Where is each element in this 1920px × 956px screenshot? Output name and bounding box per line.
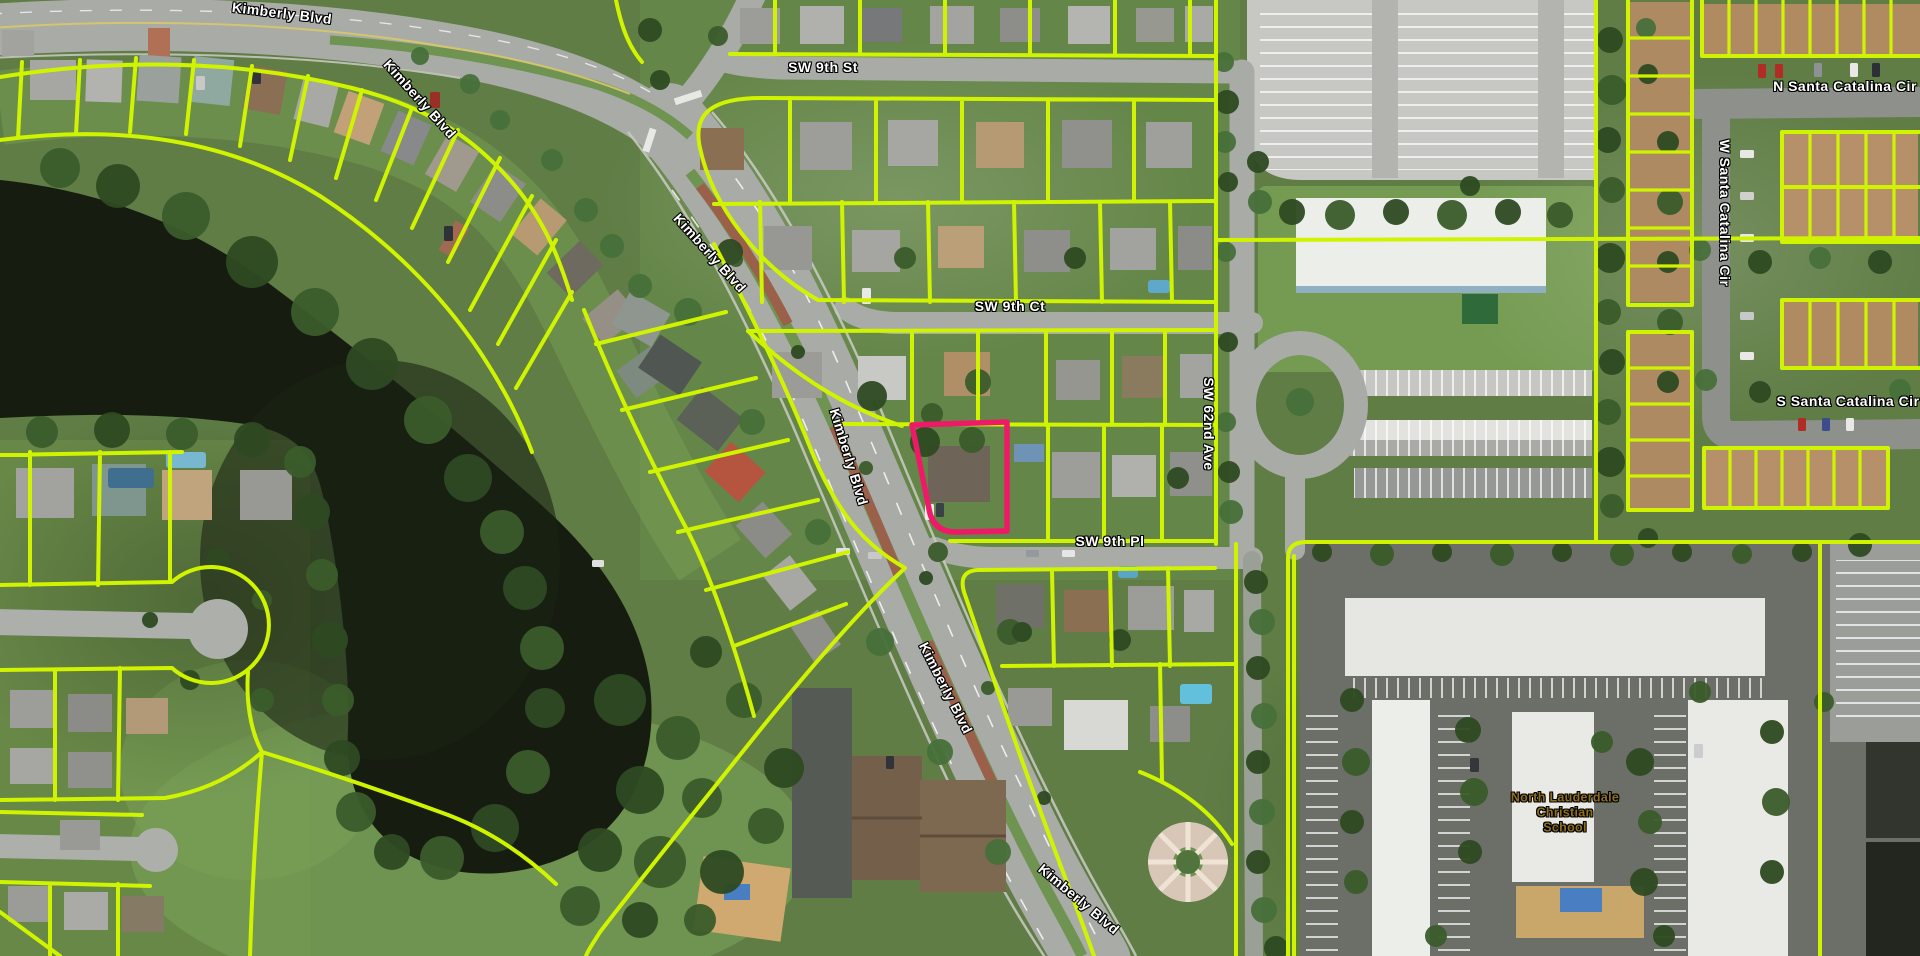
- tree-icon: [1599, 349, 1625, 375]
- building-roof: [976, 122, 1024, 168]
- building-roof: [1056, 360, 1100, 400]
- building-roof: [852, 230, 900, 272]
- tree-icon: [1312, 542, 1332, 562]
- tree-icon: [1848, 533, 1872, 557]
- tree-icon: [650, 70, 670, 90]
- tree-icon: [1342, 748, 1370, 776]
- tree-icon: [1383, 199, 1409, 225]
- tree-icon: [1218, 172, 1238, 192]
- tree-icon: [1460, 176, 1480, 196]
- tree-icon: [1657, 189, 1683, 215]
- tree-icon: [94, 412, 130, 448]
- building-roof: [122, 896, 164, 932]
- tree-icon: [1064, 247, 1086, 269]
- car: [1740, 312, 1754, 320]
- tree-icon: [764, 748, 804, 788]
- building-roof: [1064, 590, 1110, 632]
- building-roof: [8, 886, 50, 922]
- tree-icon: [40, 148, 80, 188]
- tree-icon: [1340, 688, 1364, 712]
- car: [1758, 64, 1766, 78]
- building-roof: [938, 226, 984, 268]
- tree-icon: [1638, 810, 1662, 834]
- tree-icon: [748, 808, 784, 844]
- tree-icon: [1218, 461, 1240, 483]
- tree-icon: [1732, 544, 1752, 564]
- building-roof: [700, 128, 744, 170]
- tree-icon: [708, 26, 728, 46]
- tree-icon: [1218, 332, 1238, 352]
- building-roof: [10, 748, 54, 784]
- tree-icon: [226, 236, 278, 288]
- tree-icon: [324, 740, 360, 776]
- map-viewport[interactable]: North Lauderdale Christian School Kimber…: [0, 0, 1920, 956]
- building-roof: [68, 694, 112, 732]
- tree-icon: [859, 461, 873, 475]
- tree-icon: [1792, 542, 1812, 562]
- car: [444, 226, 453, 241]
- tree-icon: [1216, 412, 1236, 432]
- aerial-map-canvas[interactable]: [0, 0, 1920, 956]
- tree-icon: [1425, 925, 1447, 947]
- building-roof: [888, 120, 938, 166]
- tree-icon: [1552, 542, 1572, 562]
- tree-icon: [1595, 243, 1625, 273]
- tree-icon: [480, 510, 524, 554]
- building-roof: [1122, 356, 1166, 398]
- tree-icon: [1437, 200, 1467, 230]
- tree-icon: [1638, 528, 1658, 548]
- tree-icon: [284, 446, 316, 478]
- building-roof: [60, 820, 100, 850]
- building-roof: [1146, 122, 1192, 168]
- tree-icon: [1279, 199, 1305, 225]
- tree-icon: [250, 688, 274, 712]
- building-roof: [1062, 120, 1112, 168]
- building-roof: [30, 60, 76, 100]
- tree-icon: [1246, 656, 1270, 680]
- tree-icon: [1458, 840, 1482, 864]
- tree-icon: [1251, 897, 1277, 923]
- tree-icon: [1695, 369, 1717, 391]
- tree-icon: [404, 396, 452, 444]
- building-roof: [1136, 8, 1174, 42]
- tree-icon: [894, 247, 916, 269]
- building-roof: [240, 470, 292, 520]
- car: [1740, 192, 1754, 200]
- tree-icon: [1630, 868, 1658, 896]
- tree-icon: [166, 418, 198, 450]
- car: [592, 560, 604, 567]
- building-roof: [1068, 6, 1110, 44]
- tree-icon: [1215, 90, 1239, 114]
- tree-icon: [638, 18, 662, 42]
- building-roof: [928, 446, 990, 502]
- building-roof: [1110, 228, 1156, 270]
- building-roof: [1064, 700, 1128, 750]
- tree-icon: [959, 427, 985, 453]
- car: [936, 503, 944, 517]
- tree-icon: [574, 198, 598, 222]
- car: [196, 76, 205, 90]
- tree-icon: [927, 739, 953, 765]
- tree-icon: [1689, 681, 1711, 703]
- tree-icon: [1809, 247, 1831, 269]
- building-roof: [862, 8, 902, 42]
- tree-icon: [1595, 399, 1621, 425]
- tree-icon: [1219, 500, 1243, 524]
- tree-icon: [26, 416, 58, 448]
- tree-icon: [700, 850, 744, 894]
- building-roof: [1008, 688, 1052, 726]
- tree-icon: [234, 422, 270, 458]
- tree-icon: [578, 828, 622, 872]
- tree-icon: [1432, 542, 1452, 562]
- tree-icon: [96, 164, 140, 208]
- building-roof: [1000, 8, 1040, 42]
- car: [430, 92, 440, 108]
- tree-icon: [1216, 242, 1236, 262]
- building-roof: [136, 55, 181, 104]
- tree-icon: [1599, 177, 1625, 203]
- car: [1694, 744, 1703, 758]
- tree-icon: [506, 750, 550, 794]
- building-roof: [10, 690, 54, 728]
- tree-icon: [306, 559, 338, 591]
- tree-icon: [1597, 27, 1623, 53]
- tree-icon: [928, 542, 948, 562]
- tree-icon: [1370, 542, 1394, 566]
- tree-icon: [560, 886, 600, 926]
- tree-icon: [1246, 850, 1270, 874]
- building-roof: [1184, 590, 1214, 632]
- tree-icon: [1868, 250, 1892, 274]
- tree-icon: [1626, 748, 1654, 776]
- tree-icon: [1248, 190, 1272, 214]
- car: [1470, 758, 1479, 772]
- tree-icon: [1012, 622, 1032, 642]
- tree-icon: [1591, 731, 1613, 753]
- tree-icon: [616, 766, 664, 814]
- tree-icon: [142, 612, 158, 628]
- building-roof: [2, 30, 34, 56]
- tree-icon: [1595, 299, 1621, 325]
- tree-icon: [1247, 151, 1269, 173]
- tree-icon: [690, 636, 722, 668]
- tree-icon: [490, 110, 510, 130]
- tree-icon: [1246, 750, 1270, 774]
- tree-icon: [1249, 799, 1275, 825]
- tree-icon: [1889, 379, 1911, 401]
- car: [1062, 550, 1075, 557]
- tree-icon: [919, 571, 933, 585]
- tree-icon: [857, 381, 887, 411]
- building-roof: [1014, 444, 1044, 462]
- tree-icon: [1762, 788, 1790, 816]
- tree-icon: [985, 839, 1011, 865]
- tree-icon: [1672, 542, 1692, 562]
- car: [1850, 63, 1858, 77]
- car: [1822, 418, 1830, 431]
- tree-icon: [162, 192, 210, 240]
- swimming-pool: [1180, 684, 1212, 704]
- car: [1775, 64, 1783, 78]
- building-roof: [1052, 452, 1100, 498]
- building-roof: [930, 6, 974, 44]
- tree-icon: [420, 836, 464, 880]
- tree-icon: [1749, 381, 1771, 403]
- car: [1740, 352, 1754, 360]
- tree-icon: [622, 902, 658, 938]
- tree-icon: [1657, 371, 1679, 393]
- building-roof: [800, 6, 844, 44]
- building-roof: [1024, 230, 1070, 272]
- tree-icon: [656, 716, 700, 760]
- tree-icon: [312, 622, 348, 658]
- tree-icon: [684, 904, 716, 936]
- tree-icon: [1657, 251, 1679, 273]
- tree-icon: [628, 274, 652, 298]
- tree-icon: [411, 47, 429, 65]
- tree-icon: [1344, 870, 1368, 894]
- tree-icon: [1286, 388, 1314, 416]
- car: [1846, 418, 1854, 431]
- tree-icon: [1595, 127, 1621, 153]
- tree-icon: [1455, 717, 1481, 743]
- tree-icon: [1653, 925, 1675, 947]
- tree-icon: [1638, 64, 1658, 84]
- tree-icon: [594, 674, 646, 726]
- tree-icon: [1814, 692, 1834, 712]
- building-roof: [800, 122, 852, 170]
- tree-icon: [1167, 467, 1189, 489]
- tree-icon: [1600, 494, 1624, 518]
- tree-icon: [600, 234, 624, 258]
- tree-icon: [1610, 542, 1634, 566]
- tree-icon: [336, 792, 376, 832]
- tree-icon: [346, 338, 398, 390]
- tree-icon: [322, 684, 354, 716]
- tree-icon: [1460, 778, 1488, 806]
- tree-icon: [1595, 447, 1625, 477]
- tree-icon: [1325, 200, 1355, 230]
- tree-icon: [503, 566, 547, 610]
- tree-icon: [444, 454, 492, 502]
- car: [1740, 150, 1754, 158]
- car: [1814, 63, 1822, 77]
- tree-icon: [1340, 810, 1364, 834]
- tree-icon: [1495, 199, 1521, 225]
- tree-icon: [460, 74, 480, 94]
- tree-icon: [294, 494, 330, 530]
- car: [1798, 418, 1806, 431]
- building-roof: [68, 752, 112, 788]
- car: [886, 756, 894, 769]
- building-roof: [64, 892, 108, 930]
- swimming-pool: [108, 468, 154, 488]
- tree-icon: [525, 688, 565, 728]
- tree-icon: [1748, 250, 1772, 274]
- swimming-pool: [1148, 280, 1170, 293]
- tree-icon: [541, 149, 563, 171]
- building-roof: [1150, 706, 1190, 742]
- tree-icon: [791, 345, 805, 359]
- building-roof: [1178, 226, 1212, 270]
- tree-icon: [520, 626, 564, 670]
- tree-icon: [374, 834, 410, 870]
- tree-icon: [1249, 609, 1275, 635]
- tree-icon: [1244, 570, 1268, 594]
- tree-icon: [1597, 75, 1627, 105]
- tree-icon: [1760, 720, 1784, 744]
- tree-icon: [739, 409, 765, 435]
- building-roof: [126, 698, 168, 734]
- tree-icon: [1760, 860, 1784, 884]
- tree-icon: [1547, 202, 1573, 228]
- tree-icon: [1636, 18, 1656, 38]
- tree-icon: [805, 519, 831, 545]
- car: [1026, 550, 1039, 557]
- tree-icon: [1251, 703, 1277, 729]
- tree-icon: [1657, 131, 1679, 153]
- building-roof: [16, 468, 74, 518]
- building-roof: [1180, 354, 1212, 398]
- tree-icon: [866, 628, 894, 656]
- tree-icon: [1490, 542, 1514, 566]
- building-roof: [1112, 455, 1156, 497]
- tree-icon: [291, 288, 339, 336]
- car: [1872, 63, 1880, 77]
